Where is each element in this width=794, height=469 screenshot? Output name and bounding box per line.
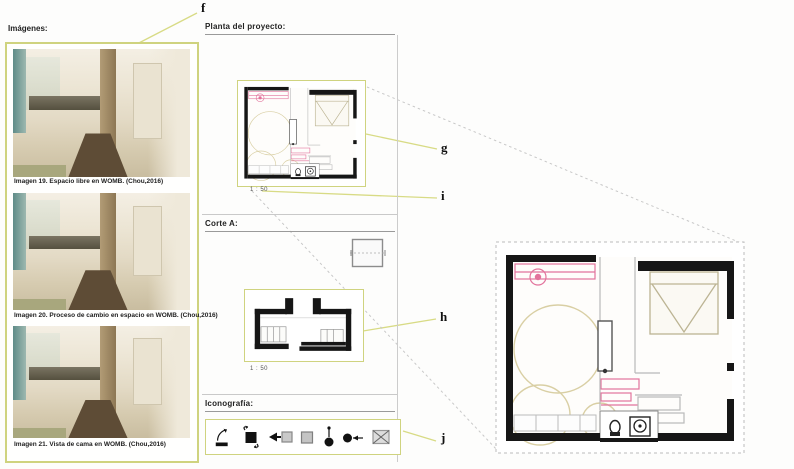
callout-j: j	[441, 430, 445, 446]
corte-scale: 1 : 50	[250, 366, 268, 372]
section-divider-1	[202, 214, 397, 215]
photo-change-process	[13, 193, 190, 310]
section-profile	[255, 298, 351, 351]
small-plan-box	[237, 80, 366, 187]
callout-i: i	[441, 188, 445, 204]
leader-h	[363, 319, 436, 331]
pivot-panel-icon	[213, 425, 235, 449]
photo-counter	[29, 96, 110, 110]
photo-door	[133, 63, 162, 139]
photo-door	[133, 206, 162, 276]
photo-caption-1: Imagen 19. Espacio libre en WOMB. (Chou,…	[14, 178, 163, 185]
photo-counter	[29, 236, 110, 249]
photo-table	[59, 133, 137, 177]
photo-bed-view	[13, 326, 190, 438]
static-square-icon	[297, 425, 317, 449]
photo-caption-2: Imagen 20. Proceso de cambio en espacio …	[14, 312, 218, 319]
photo-table	[59, 270, 137, 310]
floor-plan-small	[239, 82, 362, 183]
photo-floor	[13, 428, 66, 438]
callout-g: g	[441, 140, 448, 156]
photo-table	[59, 400, 137, 438]
corte-section-header: Corte A:	[205, 219, 395, 232]
photo-caption-3: Imagen 21. Vista de cama en WOMB. (Chou,…	[14, 441, 166, 448]
moving-point-icon	[341, 425, 365, 449]
callout-h: h	[440, 309, 447, 325]
photo-glass-panel	[13, 193, 26, 270]
images-panel: Imagen 19. Espacio libre en WOMB. (Chou,…	[5, 42, 199, 463]
leader-g	[366, 134, 437, 149]
photo-glass-panel	[13, 326, 26, 400]
corte-box	[244, 289, 364, 362]
rotating-square-icon	[239, 425, 263, 449]
plan-scale: 1 : 50	[250, 187, 268, 193]
layout-sheet: f g i h j Imágenes: Imagen 19. Espacio l…	[0, 0, 794, 469]
photo-space-free	[13, 49, 190, 177]
column-divider	[397, 35, 398, 462]
icon-section-header: Iconografía:	[205, 399, 395, 412]
photo-glass-panel	[13, 49, 26, 133]
photo-floor	[13, 299, 66, 310]
slide-in-icon	[267, 425, 293, 449]
projection-top	[367, 87, 741, 243]
key-plan	[350, 237, 386, 270]
section-drawing	[246, 291, 360, 358]
iconography-box	[205, 419, 401, 455]
floor-plan-enlarged	[494, 240, 746, 456]
pivot-point-icon	[321, 425, 337, 449]
photo-door	[133, 338, 162, 405]
photo-counter	[29, 367, 110, 379]
crossed-square-icon	[369, 425, 393, 449]
section-furniture	[261, 327, 343, 343]
photo-floor	[13, 165, 66, 177]
images-header: Imágenes:	[8, 24, 48, 33]
section-divider-2	[202, 394, 397, 395]
leader-i	[262, 191, 437, 198]
callout-f: f	[201, 0, 205, 16]
leader-j	[403, 431, 436, 441]
plan-section-header: Planta del proyecto:	[205, 22, 395, 35]
